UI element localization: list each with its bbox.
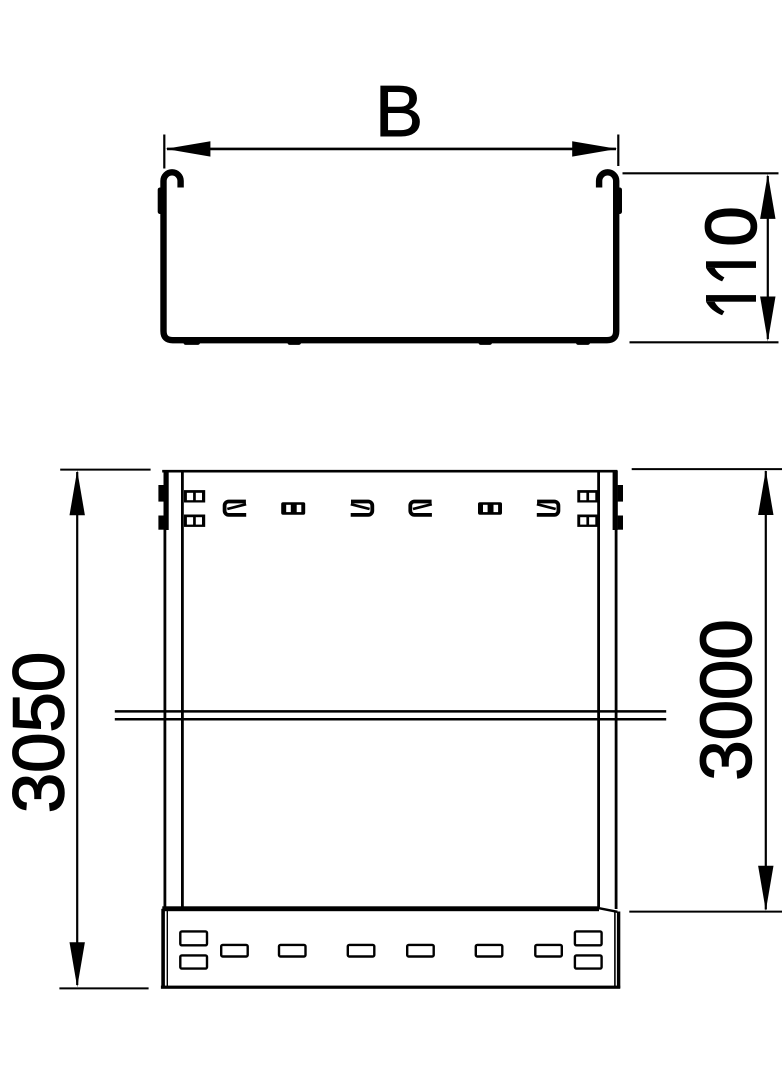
- svg-text:B: B: [375, 71, 423, 152]
- svg-text:0: 0: [691, 206, 772, 246]
- svg-text:3000: 3000: [686, 619, 767, 780]
- svg-text:3050: 3050: [0, 652, 80, 813]
